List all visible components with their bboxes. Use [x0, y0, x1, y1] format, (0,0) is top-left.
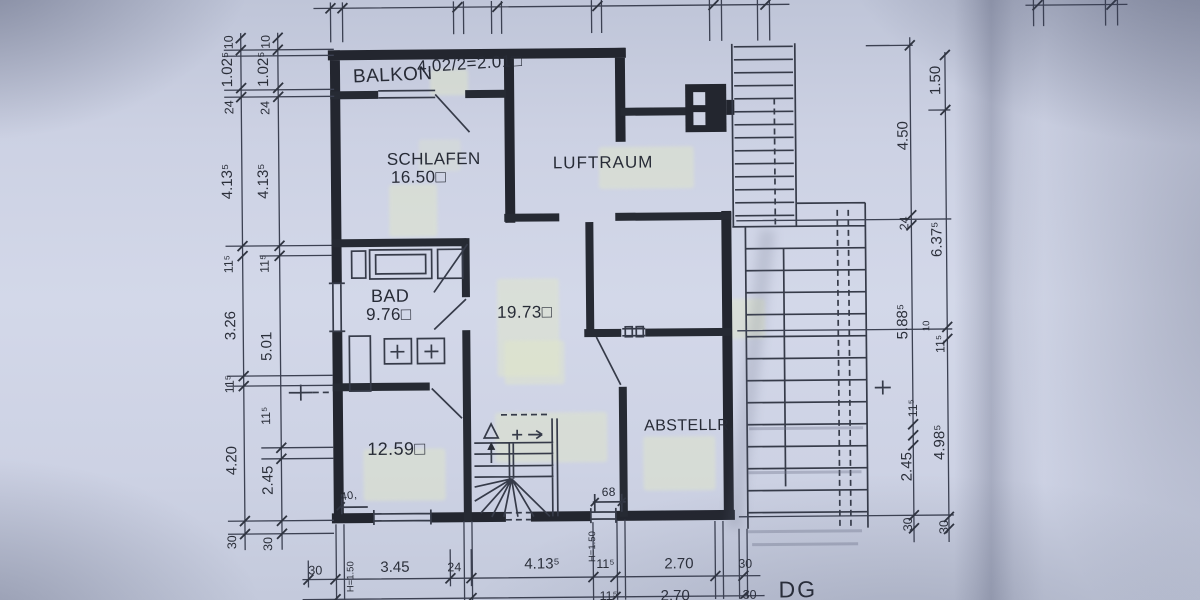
dim-label: 5.88⁵: [894, 304, 911, 340]
dim-label: 24: [447, 560, 461, 574]
dim-label: 11⁵: [258, 255, 272, 273]
dim-label: 30: [901, 517, 915, 531]
dim-label: 10: [921, 321, 932, 332]
small-dim-68: 68: [602, 485, 616, 499]
dim-label: 10: [222, 35, 236, 49]
chimney-symbol: [685, 84, 734, 132]
scanned-floor-plan-photo: BALKON 4.02/2=2.01□ SCHLAFEN 16.50□ LUFT…: [0, 0, 1200, 600]
dim-label: 4.20: [223, 446, 240, 475]
dim-label: 30: [225, 535, 239, 549]
floor-plan: BALKON 4.02/2=2.01□ SCHLAFEN 16.50□ LUFT…: [0, 0, 1200, 600]
dim-label: 4.13⁵: [524, 555, 560, 572]
dim-label: 11⁵: [933, 335, 947, 353]
dim-label: 30: [937, 520, 951, 534]
dim-label: 30: [738, 557, 752, 571]
dim-label: 10: [259, 35, 273, 49]
room-area-zimmer2: 12.59□: [367, 439, 426, 461]
room-area-bad: 9.76□: [366, 305, 412, 325]
dim-label: 11⁵: [906, 399, 920, 417]
dim-label: 2.70: [661, 587, 690, 600]
room-label-abstellraum: ABSTELLR.: [644, 417, 734, 436]
dim-label: 11⁵: [223, 375, 237, 393]
floor-plan-drawing: [0, 0, 1200, 600]
small-dim-40: 40,: [340, 489, 358, 503]
dim-label: 30: [308, 563, 322, 577]
dim-label: 24: [222, 100, 236, 114]
dim-label: 24: [258, 101, 272, 115]
dim-label: 11⁵: [259, 407, 273, 425]
dim-label: 11⁵: [596, 557, 614, 571]
dim-label: 4.98⁵: [931, 425, 948, 461]
dim-label: 11⁵: [222, 255, 236, 273]
dim-label: 3.26: [222, 311, 239, 340]
dim-label: 11⁵: [600, 589, 618, 600]
dim-label: 2.45: [898, 452, 915, 481]
dim-label: 2.45: [259, 466, 276, 495]
dim-label: 4.50: [894, 121, 911, 150]
floor-label-dg: DG: [778, 576, 817, 600]
room-area-schlafen: 16.50□: [391, 167, 446, 187]
room-label-luftraum: LUFTRAUM: [553, 153, 654, 174]
door-height-note: H=1.50: [345, 561, 356, 592]
dim-label: 4.13⁵: [219, 164, 236, 200]
dim-label: 30: [743, 588, 757, 600]
dim-label: 1.02⁵: [219, 52, 236, 88]
dim-label: 5.01: [258, 332, 275, 361]
dim-label: 1.02⁵: [255, 51, 272, 87]
dim-label: 24: [897, 216, 911, 230]
dim-label: 2.70: [664, 555, 693, 572]
room-area-zimmer: 19.73□: [497, 302, 552, 322]
dim-label: 3.45: [380, 559, 409, 576]
dim-label: 30: [261, 537, 275, 551]
dim-label: 1.50: [927, 66, 944, 95]
dim-label: 4.13⁵: [255, 163, 272, 199]
dim-label: 6.37⁵: [928, 222, 945, 258]
